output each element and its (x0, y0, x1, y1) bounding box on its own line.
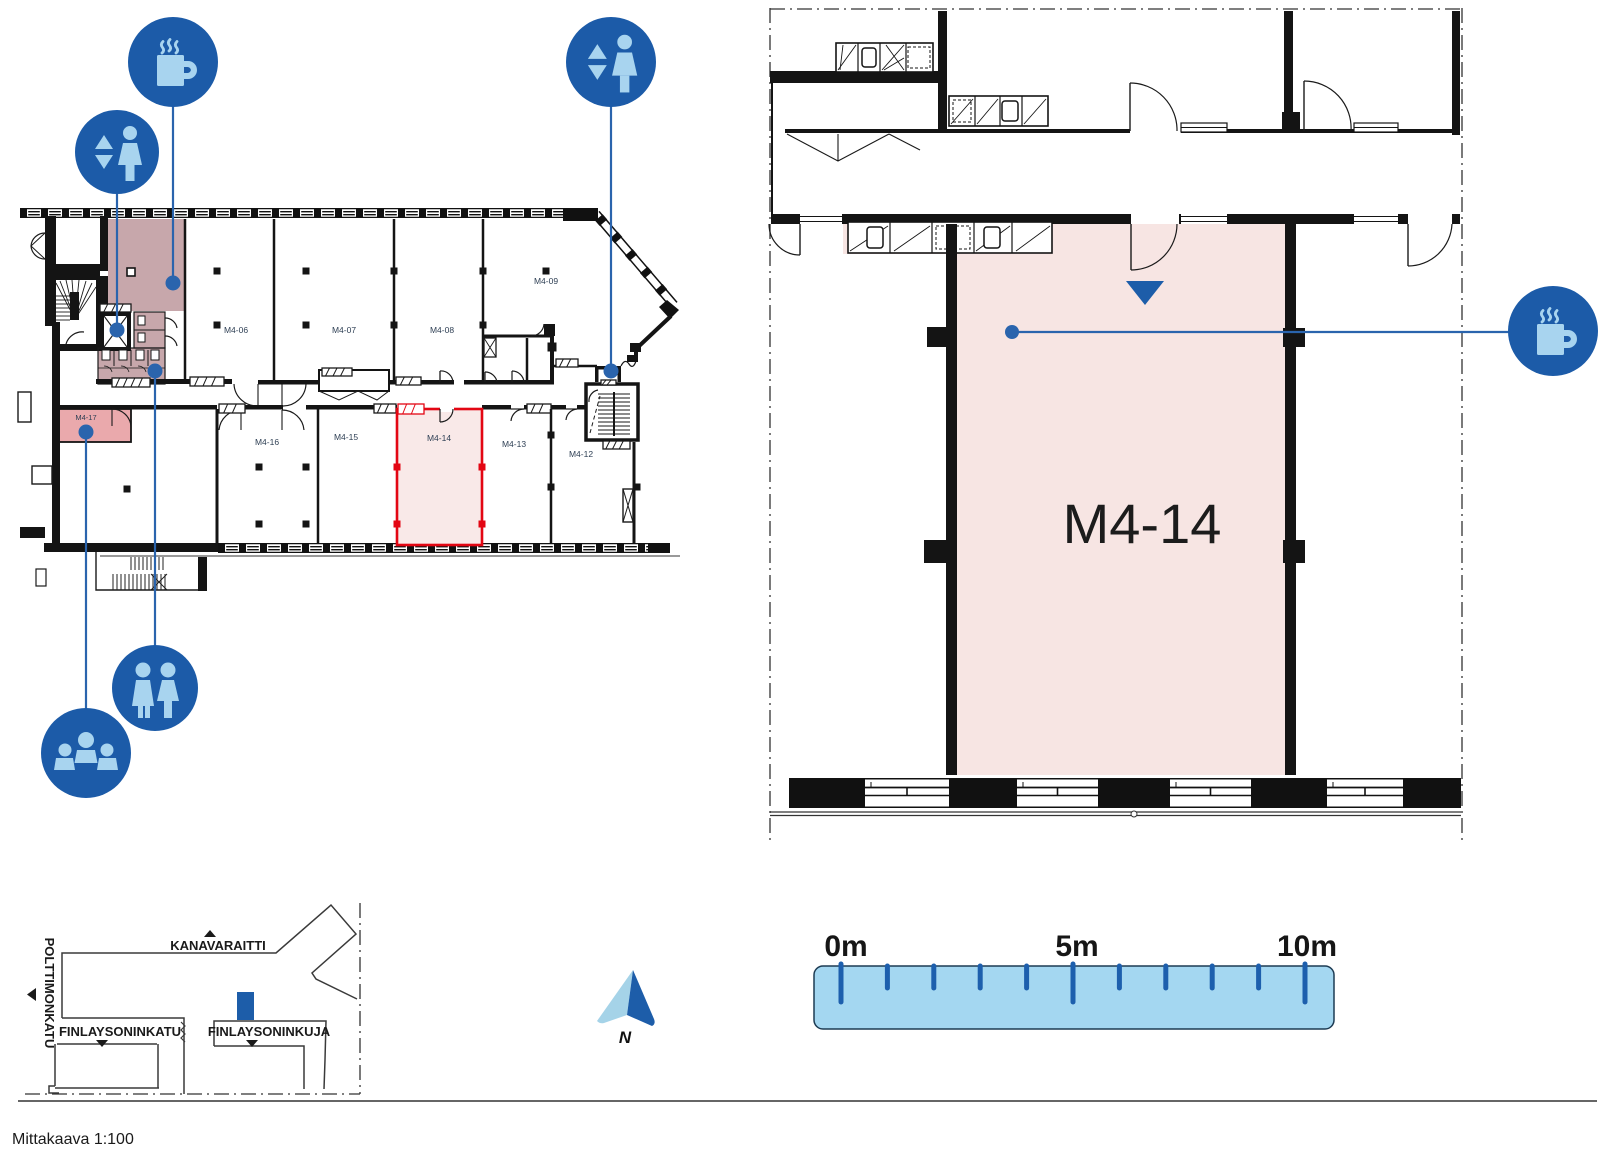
svg-text:M4-15: M4-15 (334, 432, 358, 442)
svg-text:M4-16: M4-16 (255, 437, 279, 447)
svg-text:M4-14: M4-14 (1063, 492, 1222, 555)
svg-text:M4-09: M4-09 (534, 276, 558, 286)
svg-text:M4-17: M4-17 (75, 413, 96, 422)
svg-text:10m: 10m (1277, 930, 1337, 963)
svg-text:M4-06: M4-06 (224, 325, 248, 335)
svg-text:N: N (619, 1028, 632, 1047)
svg-text:KANAVARAITTI: KANAVARAITTI (170, 938, 266, 953)
svg-text:M4-08: M4-08 (430, 325, 454, 335)
svg-text:M4-14: M4-14 (427, 433, 451, 443)
svg-text:Mittakaava 1:100: Mittakaava 1:100 (12, 1131, 134, 1148)
svg-text:M4-07: M4-07 (332, 325, 356, 335)
svg-text:FINLAYSONINKUJA: FINLAYSONINKUJA (208, 1024, 331, 1039)
svg-text:0m: 0m (824, 930, 867, 963)
svg-text:M4-12: M4-12 (569, 449, 593, 459)
svg-text:5m: 5m (1055, 930, 1098, 963)
svg-text:M4-13: M4-13 (502, 439, 526, 449)
svg-text:POLTTIMONKATU: POLTTIMONKATU (42, 938, 57, 1049)
svg-text:FINLAYSONINKATU: FINLAYSONINKATU (59, 1024, 181, 1039)
